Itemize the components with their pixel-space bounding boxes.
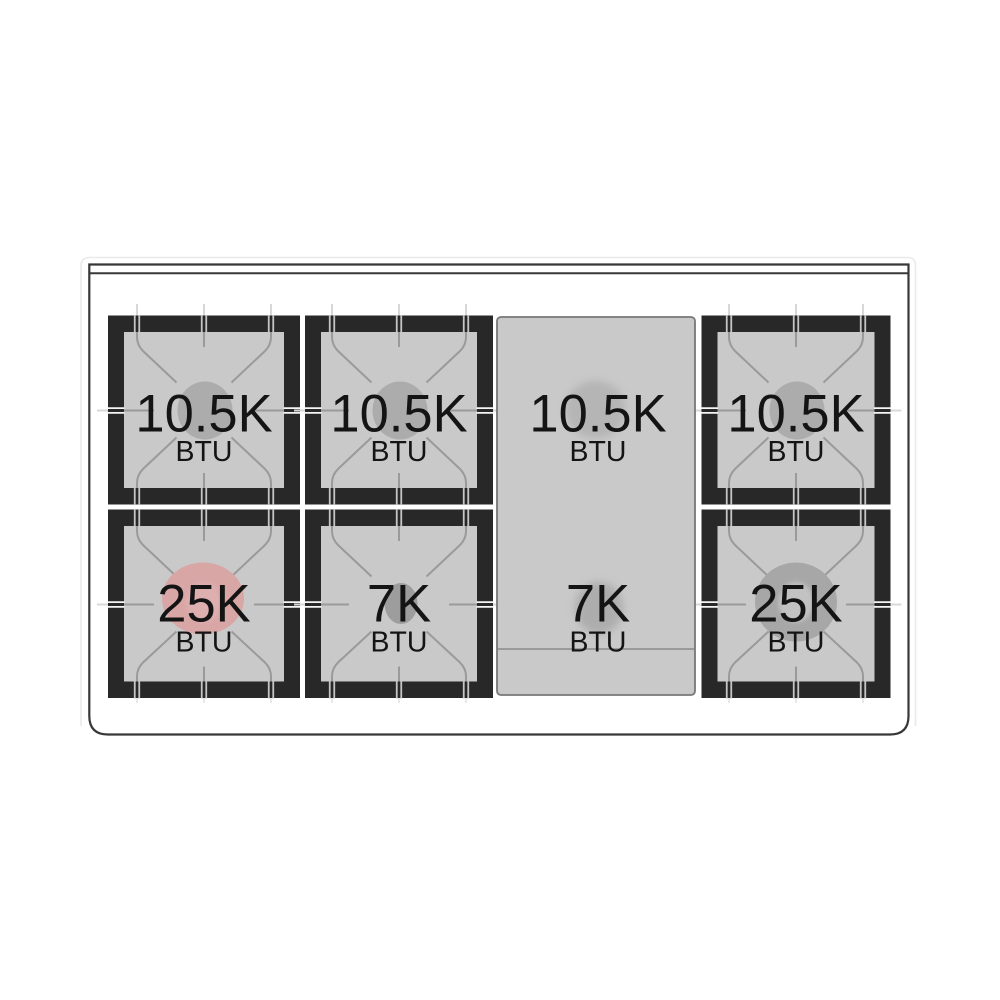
svg-text:10.5K: 10.5K (529, 385, 666, 444)
svg-text:BTU: BTU (371, 627, 428, 659)
svg-text:7K: 7K (566, 575, 630, 634)
svg-text:25K: 25K (749, 575, 842, 634)
svg-text:BTU: BTU (176, 436, 233, 468)
svg-text:25K: 25K (157, 575, 250, 634)
svg-text:BTU: BTU (570, 627, 627, 659)
svg-text:BTU: BTU (570, 436, 627, 468)
svg-text:10.5K: 10.5K (727, 385, 864, 444)
svg-text:BTU: BTU (768, 436, 825, 468)
svg-text:BTU: BTU (768, 627, 825, 659)
svg-text:7K: 7K (367, 575, 431, 634)
svg-text:BTU: BTU (371, 436, 428, 468)
svg-text:BTU: BTU (176, 627, 233, 659)
svg-text:10.5K: 10.5K (135, 385, 272, 444)
svg-text:10.5K: 10.5K (330, 385, 467, 444)
